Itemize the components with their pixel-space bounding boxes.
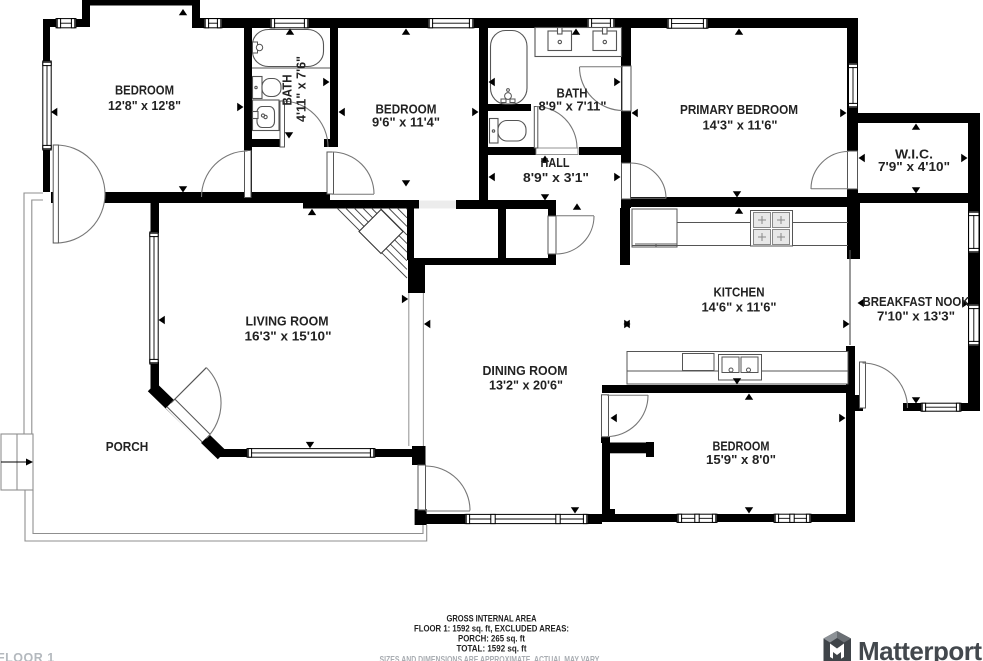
svg-text:9'6" x 11'4": 9'6" x 11'4" (372, 115, 440, 130)
svg-text:4'11" x 7'6": 4'11" x 7'6" (294, 56, 309, 122)
svg-text:Matterport: Matterport (858, 636, 982, 661)
svg-text:KITCHEN: KITCHEN (714, 285, 765, 300)
svg-text:14'6" x 11'6": 14'6" x 11'6" (702, 300, 777, 315)
svg-text:8'9" x 3'1": 8'9" x 3'1" (523, 170, 589, 185)
svg-text:16'3" x 15'10": 16'3" x 15'10" (245, 329, 332, 344)
svg-text:BATH: BATH (280, 75, 295, 106)
svg-text:12'8" x 12'8": 12'8" x 12'8" (108, 98, 181, 113)
svg-text:7'9" x 4'10": 7'9" x 4'10" (878, 159, 950, 174)
svg-text:SIZES AND DIMENSIONS ARE APPRO: SIZES AND DIMENSIONS ARE APPROXIMATE, AC… (380, 655, 601, 661)
svg-text:PORCH: PORCH (106, 439, 149, 454)
svg-text:BREAKFAST NOOK: BREAKFAST NOOK (863, 294, 970, 309)
svg-text:13'2" x 20'6": 13'2" x 20'6" (489, 378, 563, 393)
svg-text:15'9" x 8'0": 15'9" x 8'0" (706, 452, 776, 467)
svg-text:7'10" x 13'3": 7'10" x 13'3" (877, 309, 955, 324)
svg-text:TOTAL: 1592 sq. ft: TOTAL: 1592 sq. ft (457, 644, 528, 655)
svg-text:LIVING ROOM: LIVING ROOM (246, 314, 329, 329)
svg-text:8'9" x 7'11": 8'9" x 7'11" (539, 99, 607, 114)
svg-text:FLOOR 1: FLOOR 1 (0, 651, 55, 661)
svg-text:BEDROOM: BEDROOM (115, 83, 174, 98)
svg-text:DINING ROOM: DINING ROOM (483, 363, 568, 378)
svg-text:HALL: HALL (541, 155, 570, 170)
svg-text:PRIMARY BEDROOM: PRIMARY BEDROOM (680, 102, 798, 117)
svg-text:14'3" x 11'6": 14'3" x 11'6" (703, 118, 778, 133)
